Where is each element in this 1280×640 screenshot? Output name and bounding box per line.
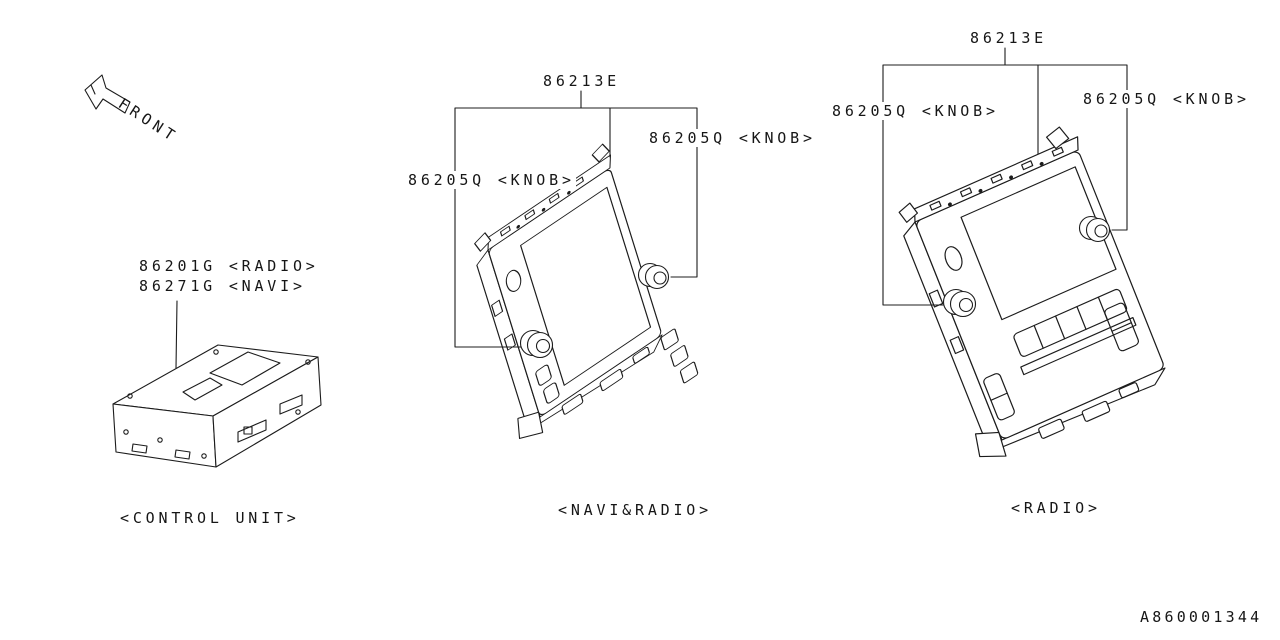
part-label-control-unit-radio: 86201G <RADIO> xyxy=(138,257,320,275)
part-label-control-unit-navi: 86271G <NAVI> xyxy=(138,277,307,295)
caption-radio: <RADIO> xyxy=(1010,499,1102,517)
parts-diagram-page: FRONT 86201G <RADIO> 86271G <NAVI> <CONT… xyxy=(0,0,1280,640)
caption-navi-radio: <NAVI&RADIO> xyxy=(557,501,713,519)
navi-radio-knob-left xyxy=(521,331,553,358)
control-unit-drawing xyxy=(113,345,321,467)
navi-radio-knob-right xyxy=(639,264,669,289)
radio-knob-left xyxy=(944,290,976,317)
part-label-knob-right-radio: 86205Q <KNOB> xyxy=(1082,90,1251,108)
part-label-bracket-navi-radio: 86213E xyxy=(542,72,621,90)
part-label-knob-right-navi-radio: 86205Q <KNOB> xyxy=(648,129,817,147)
control-unit-leader-line xyxy=(176,301,177,368)
caption-control-unit: <CONTROL UNIT> xyxy=(119,509,301,527)
radio-knob-right xyxy=(1080,217,1110,242)
diagram-id-label: A860001344 xyxy=(1139,608,1263,626)
radio-unit-drawing xyxy=(880,122,1176,467)
part-label-knob-left-radio: 86205Q <KNOB> xyxy=(831,102,1000,120)
part-label-bracket-radio: 86213E xyxy=(969,29,1048,47)
part-label-knob-left-navi-radio: 86205Q <KNOB> xyxy=(407,171,576,189)
